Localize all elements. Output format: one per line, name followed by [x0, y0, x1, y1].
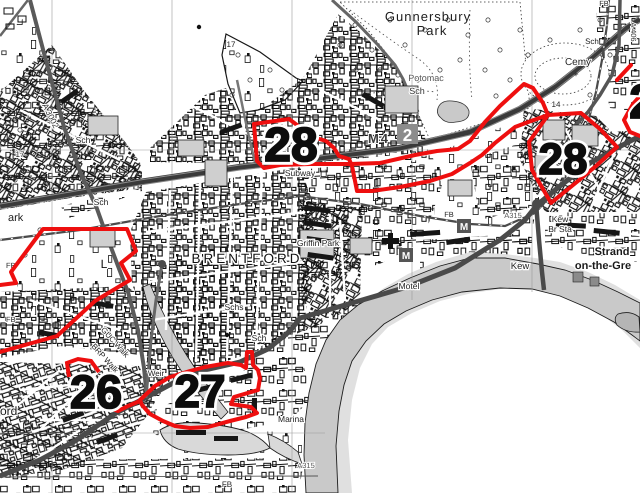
svg-text:+: + [573, 69, 578, 79]
svg-text:27: 27 [174, 365, 225, 417]
svg-text:Kew: Kew [552, 214, 569, 224]
svg-text:+: + [205, 310, 210, 320]
svg-text:28: 28 [539, 135, 588, 184]
svg-text:M: M [460, 222, 468, 233]
svg-text:Schs: Schs [225, 302, 244, 312]
svg-text:Kew: Kew [511, 261, 530, 272]
svg-text:M: M [402, 251, 410, 262]
svg-text:FB: FB [222, 480, 232, 489]
svg-text:FB: FB [599, 0, 609, 8]
svg-text:+: + [17, 389, 22, 399]
svg-text:Gunnersbury: Gunnersbury [385, 9, 471, 24]
svg-text:M4: M4 [368, 131, 390, 146]
svg-text:Sch: Sch [585, 37, 599, 46]
svg-text:14: 14 [552, 100, 561, 109]
svg-text:FB: FB [6, 315, 16, 324]
svg-text:26: 26 [70, 365, 122, 418]
svg-text:Br Sta: Br Sta [548, 224, 572, 234]
svg-text:+: + [605, 38, 610, 48]
svg-text:A315: A315 [504, 211, 522, 220]
svg-text:28: 28 [264, 119, 317, 172]
svg-text:Sch: Sch [76, 135, 91, 145]
svg-text:Cemy: Cemy [565, 57, 591, 68]
svg-text:A315: A315 [297, 461, 315, 470]
svg-text:FB: FB [444, 210, 454, 219]
svg-text:L: L [101, 257, 108, 271]
svg-text:Weir: Weir [148, 369, 165, 378]
svg-text:Motel: Motel [399, 281, 420, 291]
svg-text:17: 17 [16, 150, 25, 159]
svg-text:ark: ark [8, 212, 24, 224]
svg-text:Potomac: Potomac [408, 73, 444, 83]
svg-text:on-the-Gre: on-the-Gre [575, 260, 631, 272]
svg-text:Sch: Sch [94, 197, 109, 207]
svg-text:Griffin Park: Griffin Park [297, 238, 340, 248]
svg-text:Sch: Sch [252, 333, 267, 343]
svg-text:BRENTFORD: BRENTFORD [192, 251, 303, 266]
svg-text:Marina: Marina [278, 414, 304, 424]
svg-text:Park: Park [417, 23, 448, 38]
svg-text:28: 28 [629, 76, 640, 129]
svg-text:A 406: A 406 [629, 22, 638, 41]
svg-text:2: 2 [403, 126, 412, 145]
svg-text:17: 17 [227, 40, 236, 49]
svg-text:Strand: Strand [595, 246, 630, 258]
svg-text:ord: ord [0, 404, 17, 418]
svg-text:Sch: Sch [409, 86, 425, 96]
